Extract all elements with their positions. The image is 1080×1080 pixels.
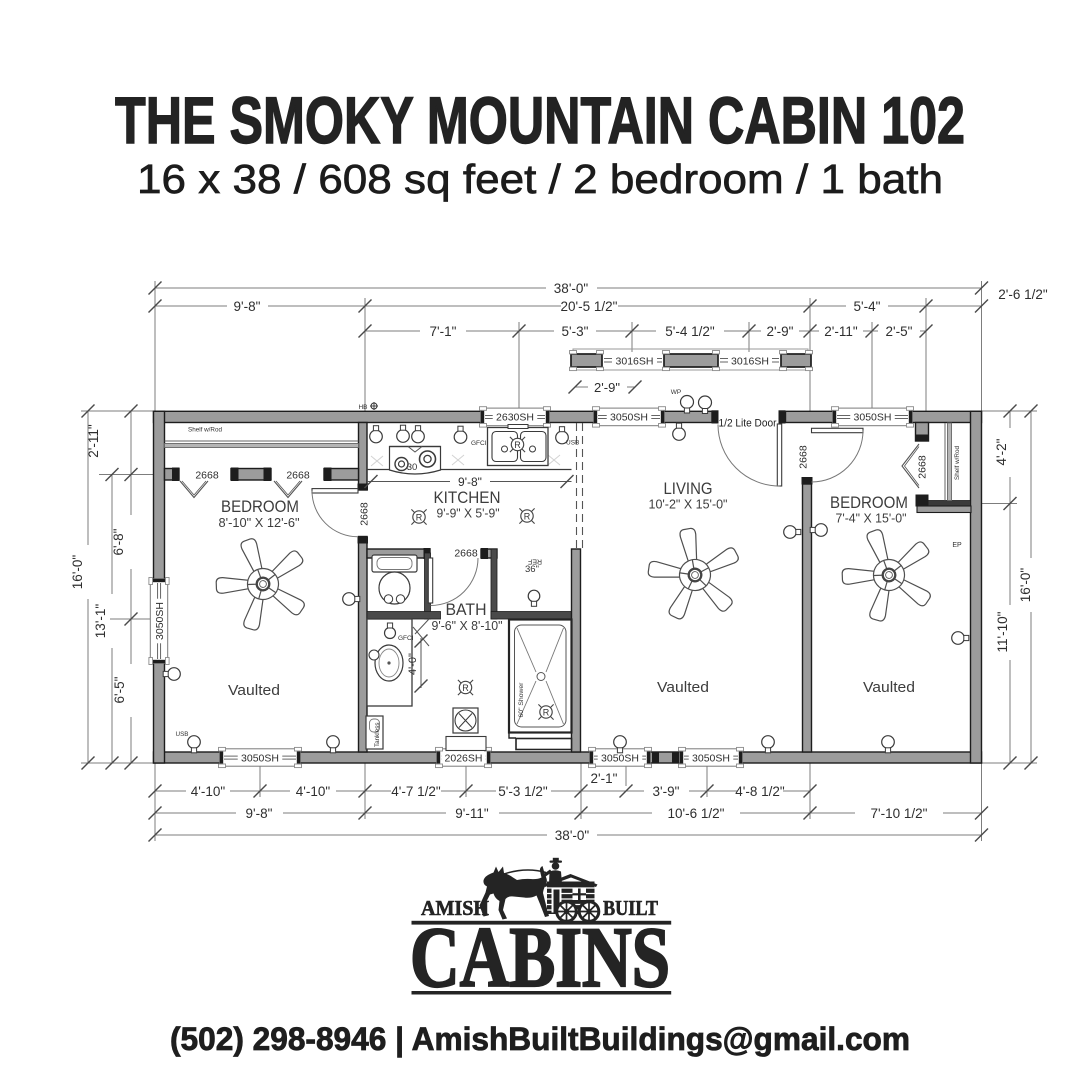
svg-text:CABINS: CABINS bbox=[410, 909, 670, 1005]
svg-text:9'-8": 9'-8" bbox=[246, 806, 273, 821]
svg-text:EP: EP bbox=[952, 542, 962, 549]
svg-text:2668: 2668 bbox=[286, 470, 310, 482]
svg-text:7'-10 1/2": 7'-10 1/2" bbox=[871, 806, 928, 821]
svg-text:BATH: BATH bbox=[446, 601, 487, 619]
svg-text:THE SMOKY MOUNTAIN CABIN 102: THE SMOKY MOUNTAIN CABIN 102 bbox=[115, 83, 965, 157]
svg-text:2668: 2668 bbox=[359, 502, 371, 526]
svg-text:Vaulted: Vaulted bbox=[657, 679, 709, 696]
svg-text:2668: 2668 bbox=[454, 548, 478, 560]
svg-text:GFCI: GFCI bbox=[398, 635, 414, 642]
svg-text:2630SH: 2630SH bbox=[496, 412, 534, 424]
svg-text:2'-9": 2'-9" bbox=[594, 380, 620, 395]
svg-text:6'-5": 6'-5" bbox=[112, 676, 127, 703]
svg-text:USB: USB bbox=[176, 731, 189, 738]
svg-text:3050SH: 3050SH bbox=[241, 752, 279, 764]
svg-text:HB: HB bbox=[358, 404, 367, 411]
svg-text:2'-1": 2'-1" bbox=[591, 771, 618, 786]
svg-text:13'-1": 13'-1" bbox=[93, 604, 108, 639]
svg-text:5'-4": 5'-4" bbox=[854, 299, 881, 314]
svg-text:60" Shower: 60" Shower bbox=[518, 682, 525, 718]
svg-text:BEDROOM: BEDROOM bbox=[830, 494, 908, 512]
svg-text:LIVING: LIVING bbox=[664, 480, 713, 498]
svg-text:9'-8": 9'-8" bbox=[234, 299, 261, 314]
svg-text:4'-10": 4'-10" bbox=[191, 784, 226, 799]
svg-text:2026SH: 2026SH bbox=[445, 752, 483, 764]
svg-text:3050SH: 3050SH bbox=[154, 602, 166, 640]
svg-text:4'-8 1/2": 4'-8 1/2" bbox=[735, 784, 785, 799]
svg-text:16'-0": 16'-0" bbox=[70, 555, 85, 590]
svg-text:20'-5 1/2": 20'-5 1/2" bbox=[561, 299, 618, 314]
svg-text:Vaulted: Vaulted bbox=[228, 682, 280, 699]
svg-text:3050SH: 3050SH bbox=[854, 412, 892, 424]
svg-text:2'-6 1/2": 2'-6 1/2" bbox=[998, 287, 1048, 302]
svg-text:38'-0": 38'-0" bbox=[555, 828, 590, 843]
svg-text:3016SH: 3016SH bbox=[616, 356, 654, 368]
svg-text:2668: 2668 bbox=[798, 445, 810, 469]
svg-text:3'-9": 3'-9" bbox=[653, 784, 680, 799]
svg-text:WP: WP bbox=[671, 389, 681, 396]
svg-text:30: 30 bbox=[407, 462, 418, 473]
svg-text:9'-9" X 5'-9": 9'-9" X 5'-9" bbox=[437, 507, 500, 521]
svg-text:11'-10": 11'-10" bbox=[995, 611, 1010, 652]
svg-text:USB: USB bbox=[566, 440, 579, 447]
svg-text:38'-0": 38'-0" bbox=[554, 281, 589, 296]
svg-text:3050SH: 3050SH bbox=[692, 752, 730, 764]
svg-text:2'-5": 2'-5" bbox=[886, 324, 913, 339]
svg-text:9'-8": 9'-8" bbox=[458, 475, 482, 489]
svg-text:2668: 2668 bbox=[917, 455, 929, 479]
svg-text:Shelf w/Rod: Shelf w/Rod bbox=[188, 427, 222, 434]
svg-text:9'-11": 9'-11" bbox=[455, 806, 489, 821]
svg-text:10'-2" X 15'-0": 10'-2" X 15'-0" bbox=[649, 498, 728, 512]
svg-text:Shelf w/Rod: Shelf w/Rod bbox=[954, 446, 961, 480]
svg-text:3050SH: 3050SH bbox=[610, 412, 648, 424]
svg-text:(502) 298-8946 | AmishBuiltBui: (502) 298-8946 | AmishBuiltBuildings@gma… bbox=[170, 1021, 910, 1057]
svg-text:5'-3 1/2": 5'-3 1/2" bbox=[498, 784, 548, 799]
svg-text:2'-11": 2'-11" bbox=[86, 424, 101, 458]
svg-text:3016SH: 3016SH bbox=[731, 356, 769, 368]
svg-text:16 x 38 / 608 sq feet / 2 bedr: 16 x 38 / 608 sq feet / 2 bedroom / 1 ba… bbox=[137, 156, 943, 202]
svg-text:GFCI: GFCI bbox=[471, 440, 487, 447]
svg-text:6'-8": 6'-8" bbox=[111, 528, 126, 555]
svg-text:5'-3": 5'-3" bbox=[562, 324, 589, 339]
svg-text:4'-0": 4'-0" bbox=[407, 653, 419, 675]
svg-text:KITCHEN: KITCHEN bbox=[434, 489, 501, 507]
svg-text:7'-1": 7'-1" bbox=[430, 324, 457, 339]
svg-text:10'-6 1/2": 10'-6 1/2" bbox=[668, 806, 725, 821]
svg-text:3050SH: 3050SH bbox=[601, 752, 639, 764]
svg-text:4'-10": 4'-10" bbox=[296, 784, 331, 799]
svg-text:2'-11": 2'-11" bbox=[824, 324, 858, 339]
svg-text:4'-2": 4'-2" bbox=[994, 438, 1009, 465]
svg-text:8'-10" X 12'-6": 8'-10" X 12'-6" bbox=[219, 516, 300, 530]
svg-text:7'-4" X 15'-0": 7'-4" X 15'-0" bbox=[836, 512, 907, 526]
svg-text:2'-9": 2'-9" bbox=[767, 324, 794, 339]
svg-text:2668: 2668 bbox=[195, 470, 219, 482]
svg-text:Vaulted: Vaulted bbox=[863, 679, 915, 696]
svg-text:Tankless: Tankless bbox=[374, 723, 381, 748]
svg-text:4'-7 1/2": 4'-7 1/2" bbox=[391, 784, 441, 799]
svg-text:BEDROOM: BEDROOM bbox=[221, 498, 299, 516]
svg-text:36": 36" bbox=[525, 564, 539, 575]
svg-text:1/2 Lite Door: 1/2 Lite Door bbox=[719, 418, 777, 430]
svg-text:16'-0": 16'-0" bbox=[1018, 568, 1033, 603]
svg-text:9'-6" X 8'-10": 9'-6" X 8'-10" bbox=[432, 619, 503, 633]
svg-text:5'-4 1/2": 5'-4 1/2" bbox=[665, 324, 715, 339]
